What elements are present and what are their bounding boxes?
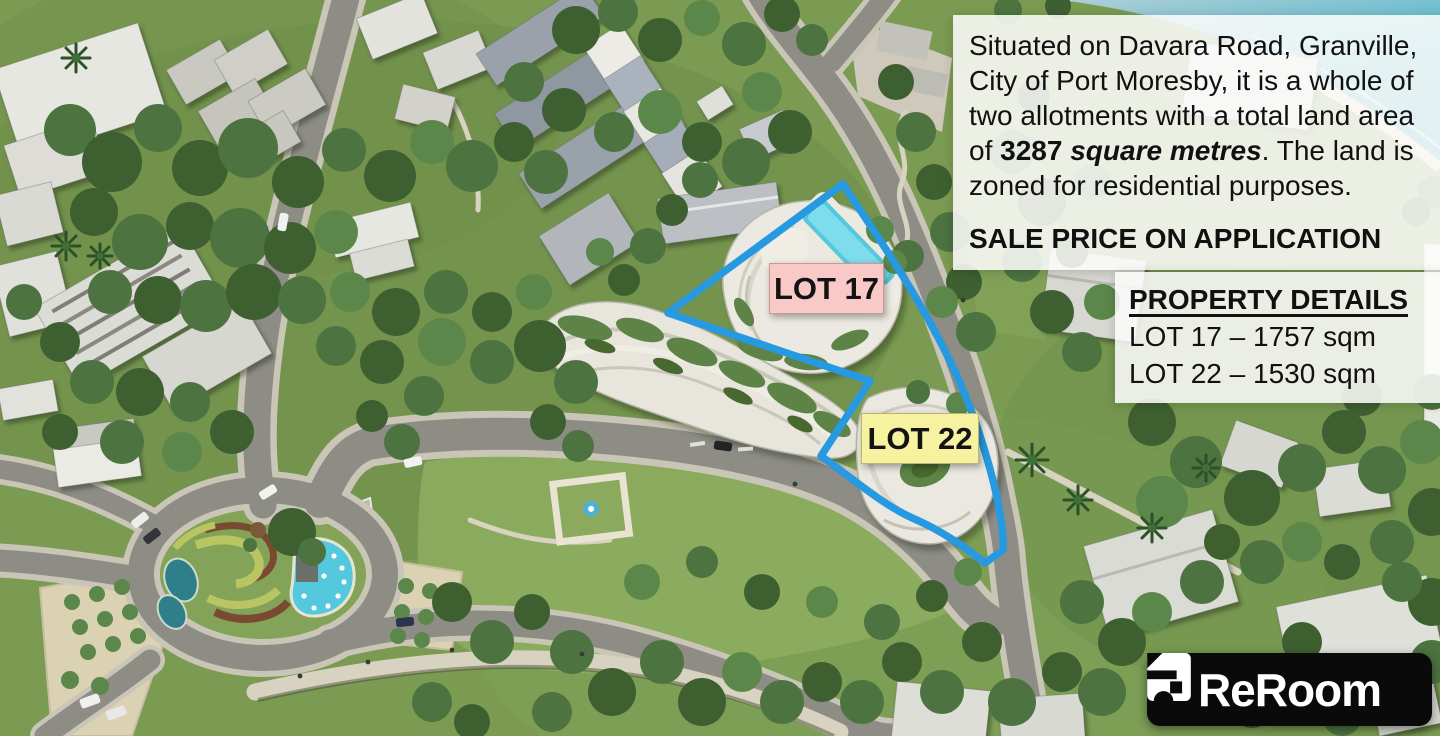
description-line: of 3287 square metres. The land is xyxy=(969,133,1440,168)
reroom-logo-text: ReRoom xyxy=(1198,663,1381,717)
property-details-title: PROPERTY DETAILS xyxy=(1129,281,1440,318)
description-line: two allotments with a total land area xyxy=(969,98,1440,133)
reroom-logo: ReRoom xyxy=(1147,653,1432,726)
property-details-panel: PROPERTY DETAILS LOT 17 – 1757 sqm LOT 2… xyxy=(1115,272,1440,403)
lot17-area-row: LOT 17 – 1757 sqm xyxy=(1129,318,1440,355)
sale-price-text: SALE PRICE ON APPLICATION xyxy=(969,221,1440,256)
description-line: City of Port Moresby, it is a whole of xyxy=(969,63,1440,98)
lot22-area-row: LOT 22 – 1530 sqm xyxy=(1129,355,1440,392)
description-line: zoned for residential purposes. xyxy=(969,168,1440,203)
lot17-map-label: LOT 17 xyxy=(769,263,884,314)
lot22-building xyxy=(856,387,998,543)
property-description-panel: Situated on Davara Road, Granville, City… xyxy=(953,15,1440,270)
aerial-site-plan: Situated on Davara Road, Granville, City… xyxy=(0,0,1440,736)
lot22-map-label: LOT 22 xyxy=(861,413,979,464)
reroom-r-icon xyxy=(1147,653,1191,701)
description-line: Situated on Davara Road, Granville, xyxy=(969,28,1440,63)
